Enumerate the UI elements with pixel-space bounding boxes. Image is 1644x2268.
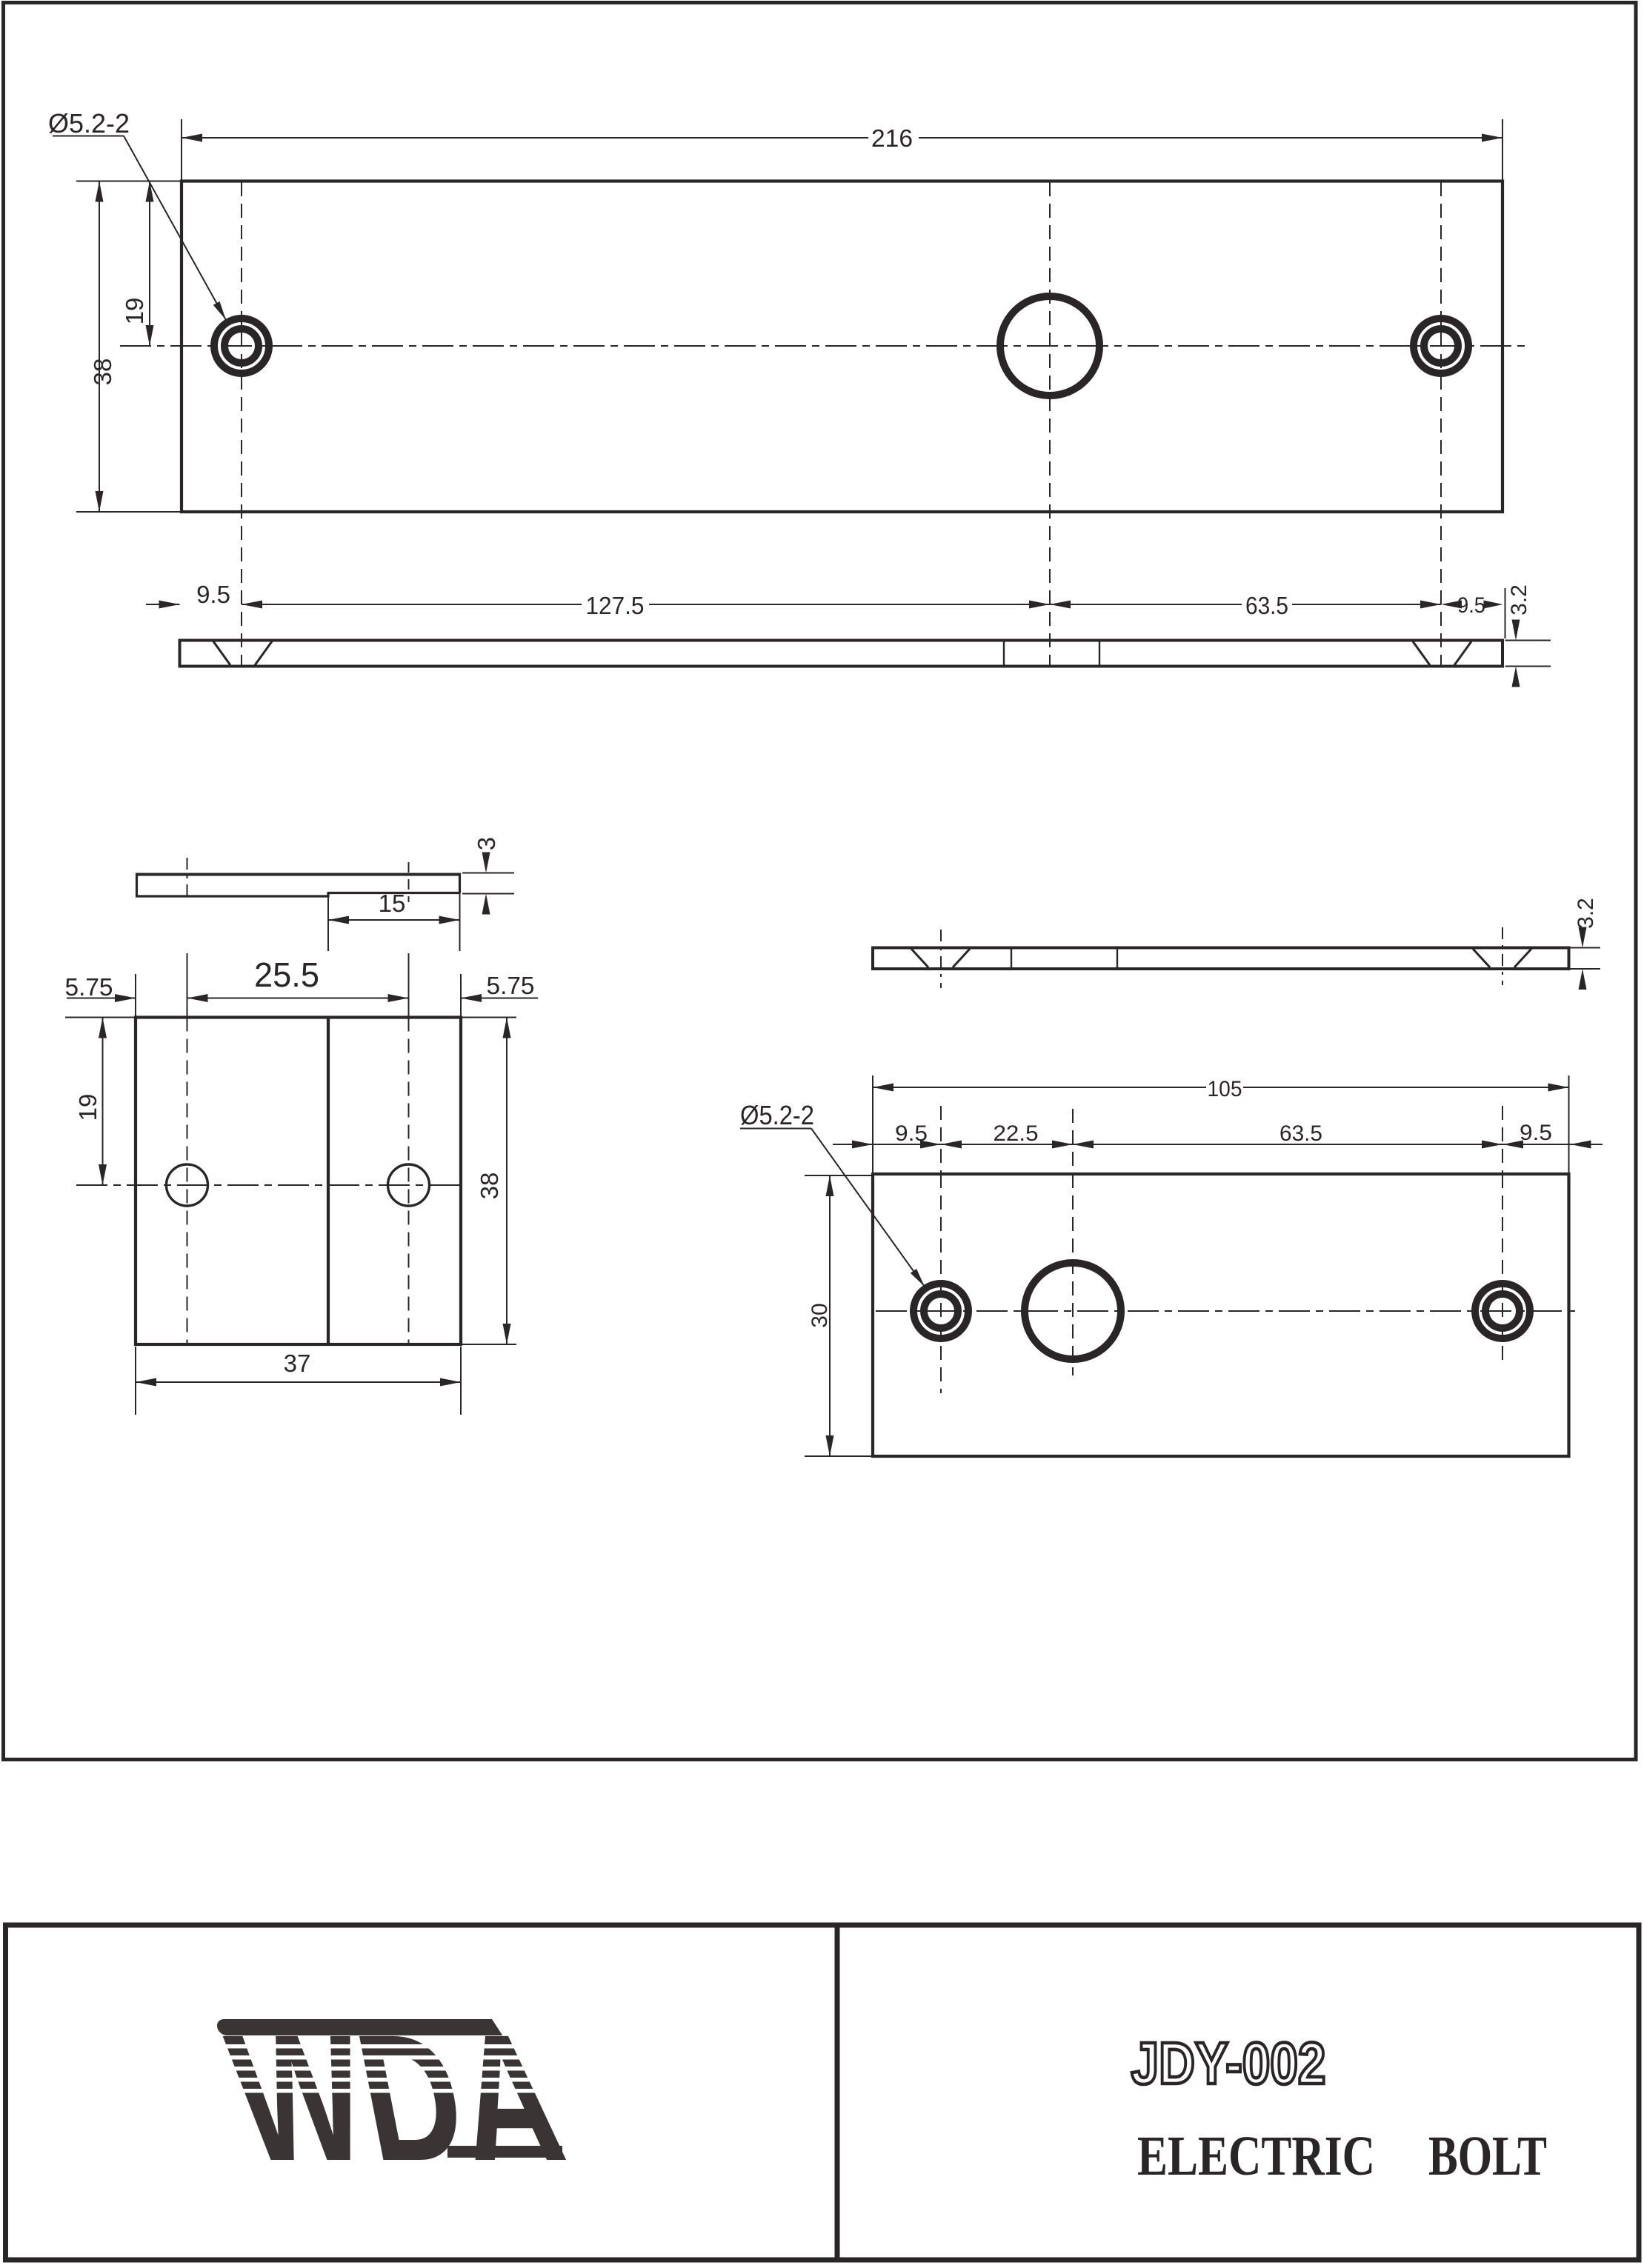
svg-text:9.5: 9.5 (196, 581, 230, 608)
svg-text:37: 37 (284, 1350, 311, 1377)
svg-text:3.2: 3.2 (1574, 898, 1598, 929)
svg-text:5.75: 5.75 (487, 972, 535, 999)
svg-text:63.5: 63.5 (1279, 1121, 1322, 1146)
svg-text:9.5: 9.5 (1457, 593, 1485, 618)
svg-text:25.5: 25.5 (254, 955, 319, 994)
svg-text:30: 30 (808, 1303, 832, 1327)
svg-text:15: 15 (379, 890, 406, 917)
svg-text:38: 38 (476, 1173, 503, 1200)
svg-text:Ø5.2-2: Ø5.2-2 (740, 1100, 814, 1130)
svg-text:19: 19 (121, 298, 148, 325)
svg-text:5.75: 5.75 (65, 973, 113, 1001)
svg-text:3: 3 (473, 837, 500, 850)
svg-text:19: 19 (74, 1094, 101, 1121)
svg-text:22.5: 22.5 (994, 1121, 1039, 1146)
svg-text:3.2: 3.2 (1507, 584, 1531, 616)
svg-text:63.5: 63.5 (1245, 592, 1288, 619)
svg-text:216: 216 (871, 124, 913, 152)
svg-text:105: 105 (1208, 1077, 1242, 1101)
svg-text:38: 38 (89, 358, 116, 386)
svg-text:BOLT: BOLT (1428, 2125, 1547, 2187)
svg-text:ELECTRIC: ELECTRIC (1137, 2125, 1375, 2187)
svg-text:9.5: 9.5 (1520, 1121, 1552, 1145)
svg-text:Ø5.2-2: Ø5.2-2 (48, 108, 130, 139)
svg-text:127.5: 127.5 (586, 592, 645, 619)
svg-text:JDY-002: JDY-002 (1131, 2030, 1326, 2096)
